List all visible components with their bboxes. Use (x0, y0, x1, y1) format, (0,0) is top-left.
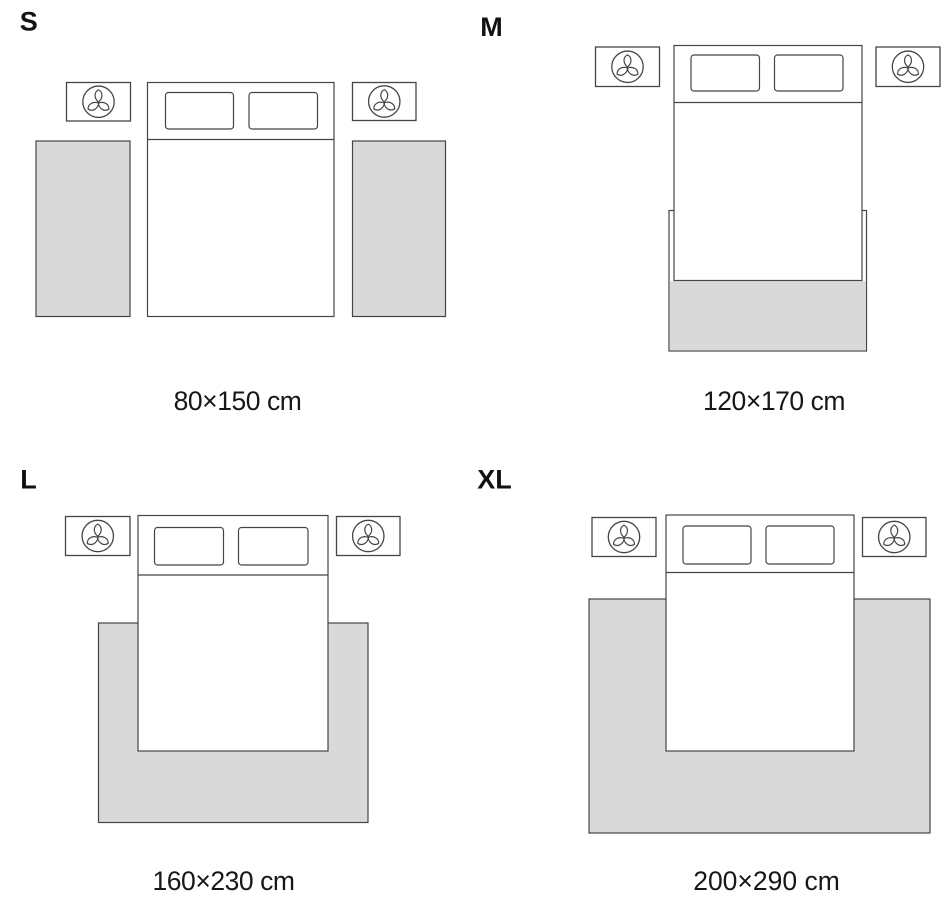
svg-text:80×150 cm: 80×150 cm (174, 386, 302, 416)
svg-text:L: L (20, 465, 37, 495)
svg-text:200×290 cm: 200×290 cm (693, 866, 840, 896)
svg-text:120×170 cm: 120×170 cm (703, 386, 845, 416)
svg-text:160×230 cm: 160×230 cm (152, 866, 294, 896)
svg-text:S: S (20, 7, 38, 37)
svg-text:M: M (480, 12, 503, 42)
svg-text:XL: XL (477, 465, 512, 495)
